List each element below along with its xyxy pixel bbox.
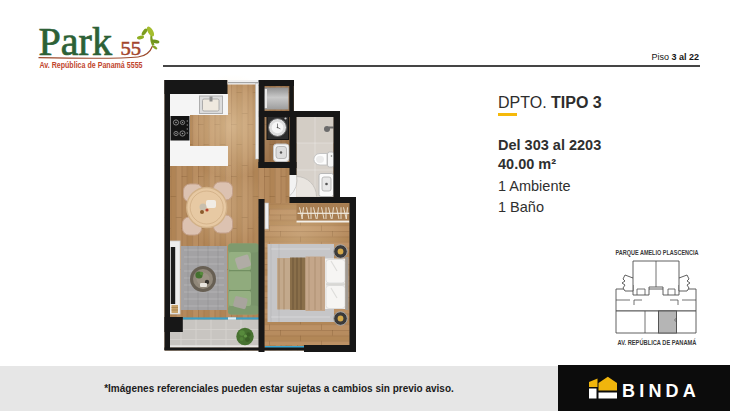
svg-text:55: 55 (121, 39, 142, 59)
svg-text:PARQUE AMELIO PLASCENCIA: PARQUE AMELIO PLASCENCIA (616, 249, 699, 257)
svg-text:Park: Park (39, 20, 113, 63)
svg-text:BINDA: BINDA (622, 381, 700, 401)
svg-text:Av. República de Panamá 5555: Av. República de Panamá 5555 (40, 60, 143, 70)
svg-text:AV. REPÚBLICA DE PANAMÁ: AV. REPÚBLICA DE PANAMÁ (618, 338, 697, 346)
